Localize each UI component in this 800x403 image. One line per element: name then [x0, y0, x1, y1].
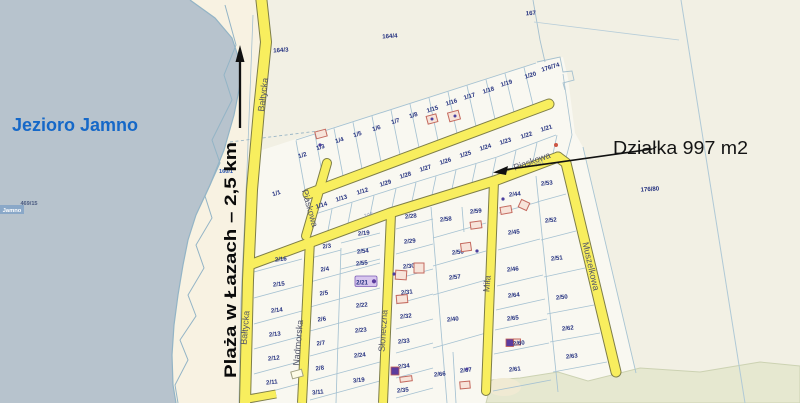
svg-text:Jezioro Jamno: Jezioro Jamno: [12, 115, 138, 135]
svg-text:2/3: 2/3: [322, 243, 332, 251]
svg-text:Miła: Miła: [481, 275, 492, 292]
svg-text:Działka 997 m2: Działka 997 m2: [613, 138, 748, 158]
svg-text:2/15: 2/15: [273, 280, 286, 288]
svg-text:2/50: 2/50: [556, 293, 569, 301]
svg-text:2/63: 2/63: [566, 352, 579, 360]
svg-text:Plaża w Łazach – 2,5 km: Plaża w Łazach – 2,5 km: [221, 142, 240, 378]
svg-text:2/60: 2/60: [513, 339, 526, 347]
svg-text:2/51: 2/51: [551, 254, 564, 262]
svg-text:3/11: 3/11: [312, 388, 325, 396]
svg-text:Jamno: Jamno: [3, 208, 22, 214]
svg-text:2/52: 2/52: [545, 216, 558, 224]
svg-text:2/61: 2/61: [509, 365, 522, 373]
svg-text:2/23: 2/23: [355, 326, 368, 334]
svg-text:2/34: 2/34: [398, 362, 411, 370]
svg-text:2/67: 2/67: [460, 366, 473, 374]
svg-text:2/24: 2/24: [354, 351, 367, 359]
svg-text:2/59: 2/59: [470, 207, 483, 215]
svg-text:2/14: 2/14: [271, 306, 284, 314]
svg-text:2/35: 2/35: [397, 386, 410, 394]
svg-text:176/80: 176/80: [640, 185, 660, 193]
svg-text:2/32: 2/32: [400, 312, 413, 320]
svg-text:2/5: 2/5: [319, 290, 329, 298]
svg-text:167: 167: [526, 10, 537, 18]
svg-text:2/29: 2/29: [404, 237, 417, 245]
svg-text:2/64: 2/64: [508, 291, 521, 299]
svg-text:2/46: 2/46: [507, 265, 520, 273]
svg-text:2/13: 2/13: [269, 330, 282, 338]
svg-text:2/58: 2/58: [440, 215, 453, 223]
svg-text:2/12: 2/12: [268, 354, 281, 362]
svg-text:2/66: 2/66: [434, 370, 447, 378]
svg-text:2/6: 2/6: [317, 316, 327, 324]
svg-text:2/33: 2/33: [398, 337, 411, 345]
svg-text:164/3: 164/3: [273, 46, 289, 54]
svg-text:2/57: 2/57: [449, 273, 462, 281]
svg-text:2/28: 2/28: [405, 212, 418, 220]
svg-text:2/44: 2/44: [509, 190, 522, 198]
svg-text:2/53: 2/53: [541, 179, 554, 187]
svg-text:2/65: 2/65: [507, 314, 520, 322]
svg-text:2/22: 2/22: [356, 301, 369, 309]
svg-text:2/4: 2/4: [320, 266, 330, 274]
svg-text:2/8: 2/8: [315, 365, 325, 373]
svg-text:2/45: 2/45: [508, 228, 521, 236]
svg-text:2/11: 2/11: [266, 378, 279, 386]
svg-text:164/4: 164/4: [382, 32, 398, 40]
svg-text:2/62: 2/62: [562, 324, 575, 332]
svg-text:2/40: 2/40: [447, 315, 460, 323]
svg-text:3/19: 3/19: [353, 376, 366, 384]
svg-text:2/21: 2/21: [356, 280, 368, 287]
svg-text:2/54: 2/54: [357, 247, 370, 255]
svg-text:2/19: 2/19: [358, 229, 371, 237]
svg-text:2/7: 2/7: [316, 340, 326, 348]
svg-text:2/55: 2/55: [356, 259, 369, 267]
svg-text:2/16: 2/16: [275, 255, 288, 263]
